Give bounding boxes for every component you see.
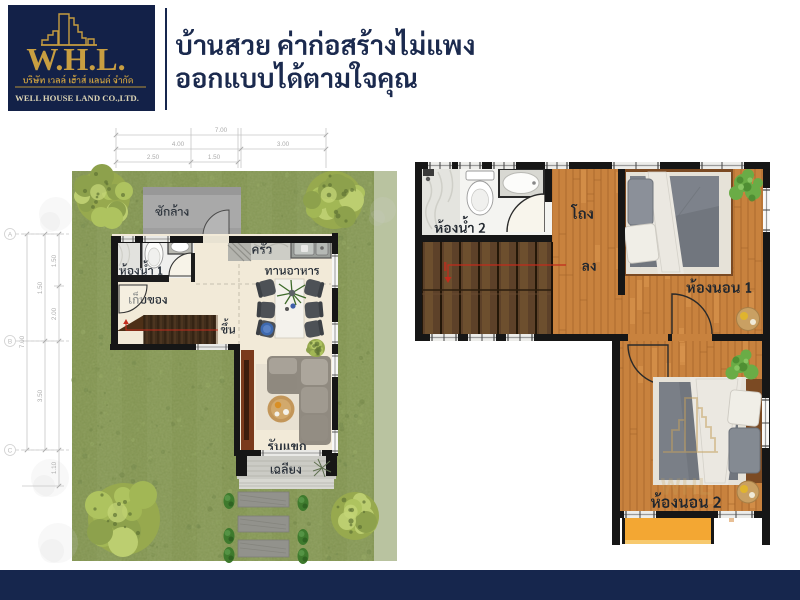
svg-text:1.50: 1.50 [208, 154, 221, 161]
svg-text:4.00: 4.00 [172, 141, 185, 148]
svg-text:WELL HOUSE LAND CO.,LTD.: WELL HOUSE LAND CO.,LTD. [15, 93, 139, 103]
svg-text:1.50: 1.50 [51, 254, 58, 267]
svg-text:C: C [8, 448, 13, 455]
svg-text:1.10: 1.10 [51, 461, 58, 474]
svg-text:2.50: 2.50 [147, 154, 160, 161]
svg-text:B: B [8, 339, 12, 346]
svg-text:7.00: 7.00 [215, 127, 228, 134]
svg-text:A: A [8, 232, 13, 239]
svg-text:7.00: 7.00 [19, 335, 26, 348]
svg-text:3.00: 3.00 [277, 141, 290, 148]
svg-text:2.00: 2.00 [51, 307, 58, 320]
svg-text:1.50: 1.50 [37, 281, 44, 294]
svg-text:3.50: 3.50 [37, 389, 44, 402]
svg-text:W.H.L.: W.H.L. [26, 41, 125, 77]
